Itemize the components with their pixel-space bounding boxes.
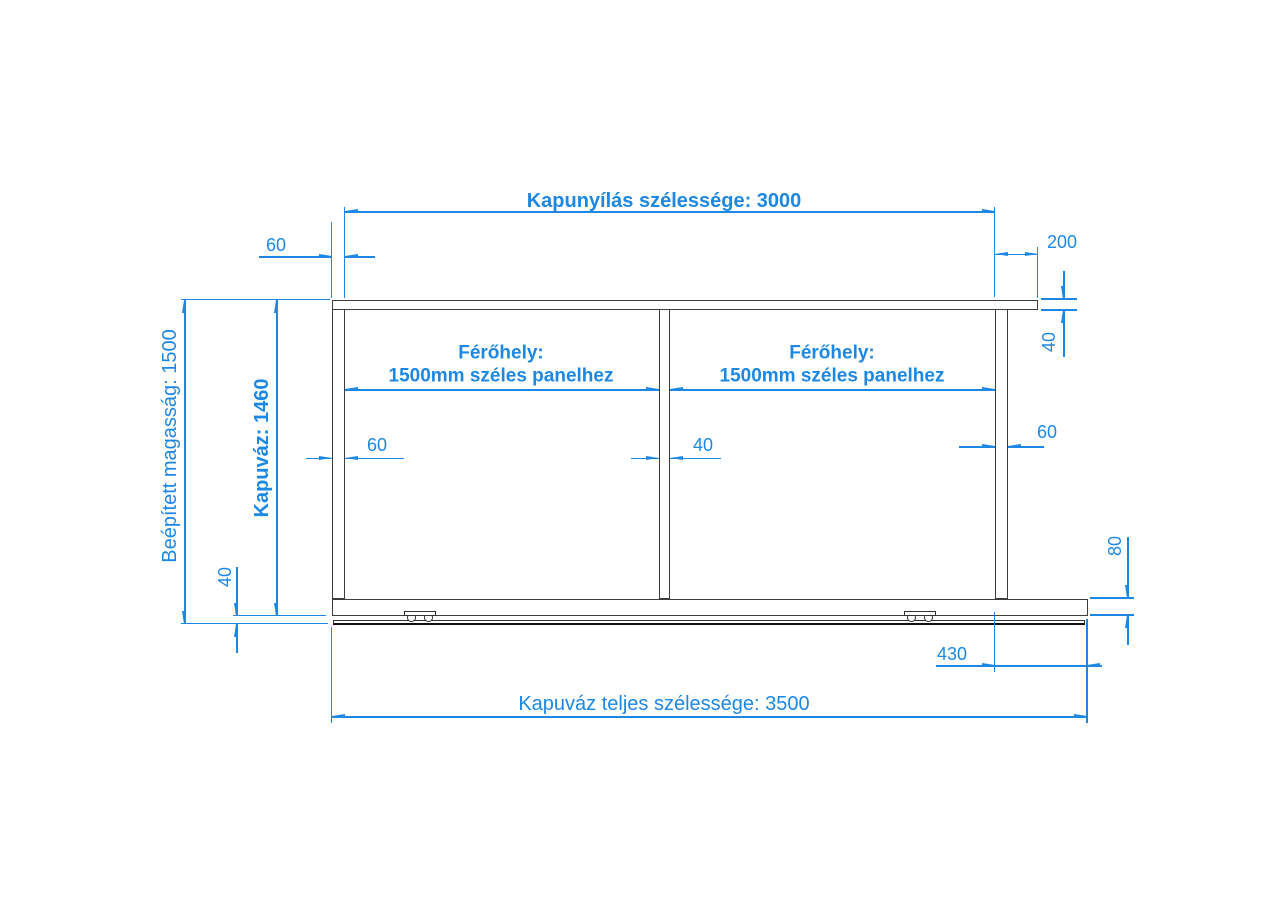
arrowhead — [1125, 615, 1129, 628]
arrowhead — [1087, 663, 1100, 667]
arrowhead — [345, 254, 358, 258]
arrowhead — [234, 624, 238, 637]
label-top-bar-height: 40 — [1040, 332, 1058, 352]
arrowhead — [1025, 252, 1038, 256]
ext-line — [344, 207, 345, 298]
label-panel-space-title: Férőhely: — [458, 344, 544, 363]
label-right-post-width: 60 — [1037, 423, 1057, 441]
arrowhead — [182, 611, 186, 624]
arrowhead — [646, 456, 659, 460]
arrowhead — [1074, 714, 1087, 718]
dim-line — [345, 389, 659, 390]
arrowhead — [982, 663, 995, 667]
arrowhead — [982, 387, 995, 391]
arrowhead — [332, 714, 345, 718]
arrowhead — [995, 252, 1008, 256]
frame-left-post — [332, 309, 345, 599]
arrowhead — [1061, 310, 1065, 323]
label-bottom-bar-height: 80 — [1106, 536, 1124, 556]
label-frame-height: Kapuváz: 1460 — [252, 379, 272, 518]
arrowhead — [345, 209, 358, 213]
arrowhead — [982, 444, 995, 448]
label-opening-width: Kapunyílás szélessége: 3000 — [527, 191, 802, 211]
ground-rail — [333, 620, 1085, 625]
arrowhead — [345, 387, 358, 391]
arrowhead — [982, 209, 995, 213]
label-ground-clearance: 40 — [216, 567, 234, 587]
frame-right-post — [995, 309, 1009, 599]
ext-line — [1086, 619, 1087, 723]
arrowhead — [670, 456, 683, 460]
arrowhead — [319, 456, 332, 460]
label-top-left-post-width: 60 — [266, 236, 286, 254]
label-panel-space-title: Férőhely: — [789, 344, 875, 363]
ext-line — [1041, 298, 1077, 299]
arrowhead — [274, 300, 278, 313]
roller-plate — [904, 611, 936, 616]
arrowhead — [234, 603, 238, 616]
frame-middle-post — [659, 309, 670, 599]
arrowhead — [319, 254, 332, 258]
dim-line — [670, 389, 996, 390]
arrowhead — [274, 603, 278, 616]
frame-top-bar — [332, 300, 1038, 310]
arrowhead — [670, 387, 683, 391]
frame-bottom-bar — [332, 599, 1088, 617]
ext-line — [181, 623, 328, 624]
label-bottom-right-overhang: 430 — [937, 645, 967, 663]
arrowhead — [1061, 286, 1065, 299]
arrowhead — [1008, 444, 1021, 448]
ext-line — [233, 615, 326, 616]
roller-plate — [404, 611, 436, 616]
arrowhead — [1125, 585, 1129, 598]
label-total-width: Kapuváz teljes szélessége: 3500 — [518, 694, 809, 714]
gate-frame-technical-drawing: Kapunyílás szélessége: 3000 60 200 40 Fé… — [0, 0, 1280, 905]
arrowhead — [646, 387, 659, 391]
ext-line — [331, 222, 332, 298]
label-left-post-width: 60 — [367, 436, 387, 454]
dim-line — [276, 300, 277, 616]
ext-line — [181, 299, 330, 300]
arrowhead — [182, 300, 186, 313]
label-panel-space-subtitle: 1500mm széles panelhez — [720, 367, 945, 386]
label-middle-post-width: 40 — [693, 436, 713, 454]
label-panel-space-subtitle: 1500mm széles panelhez — [389, 367, 614, 386]
dim-line — [332, 716, 1088, 717]
dim-line — [936, 665, 1102, 666]
ext-line — [331, 627, 332, 723]
arrowhead — [345, 456, 358, 460]
dim-line — [184, 300, 185, 624]
ext-line — [1041, 309, 1077, 310]
label-top-right-overhang: 200 — [1047, 233, 1077, 251]
label-installed-height: Beépített magasság: 1500 — [160, 329, 180, 563]
